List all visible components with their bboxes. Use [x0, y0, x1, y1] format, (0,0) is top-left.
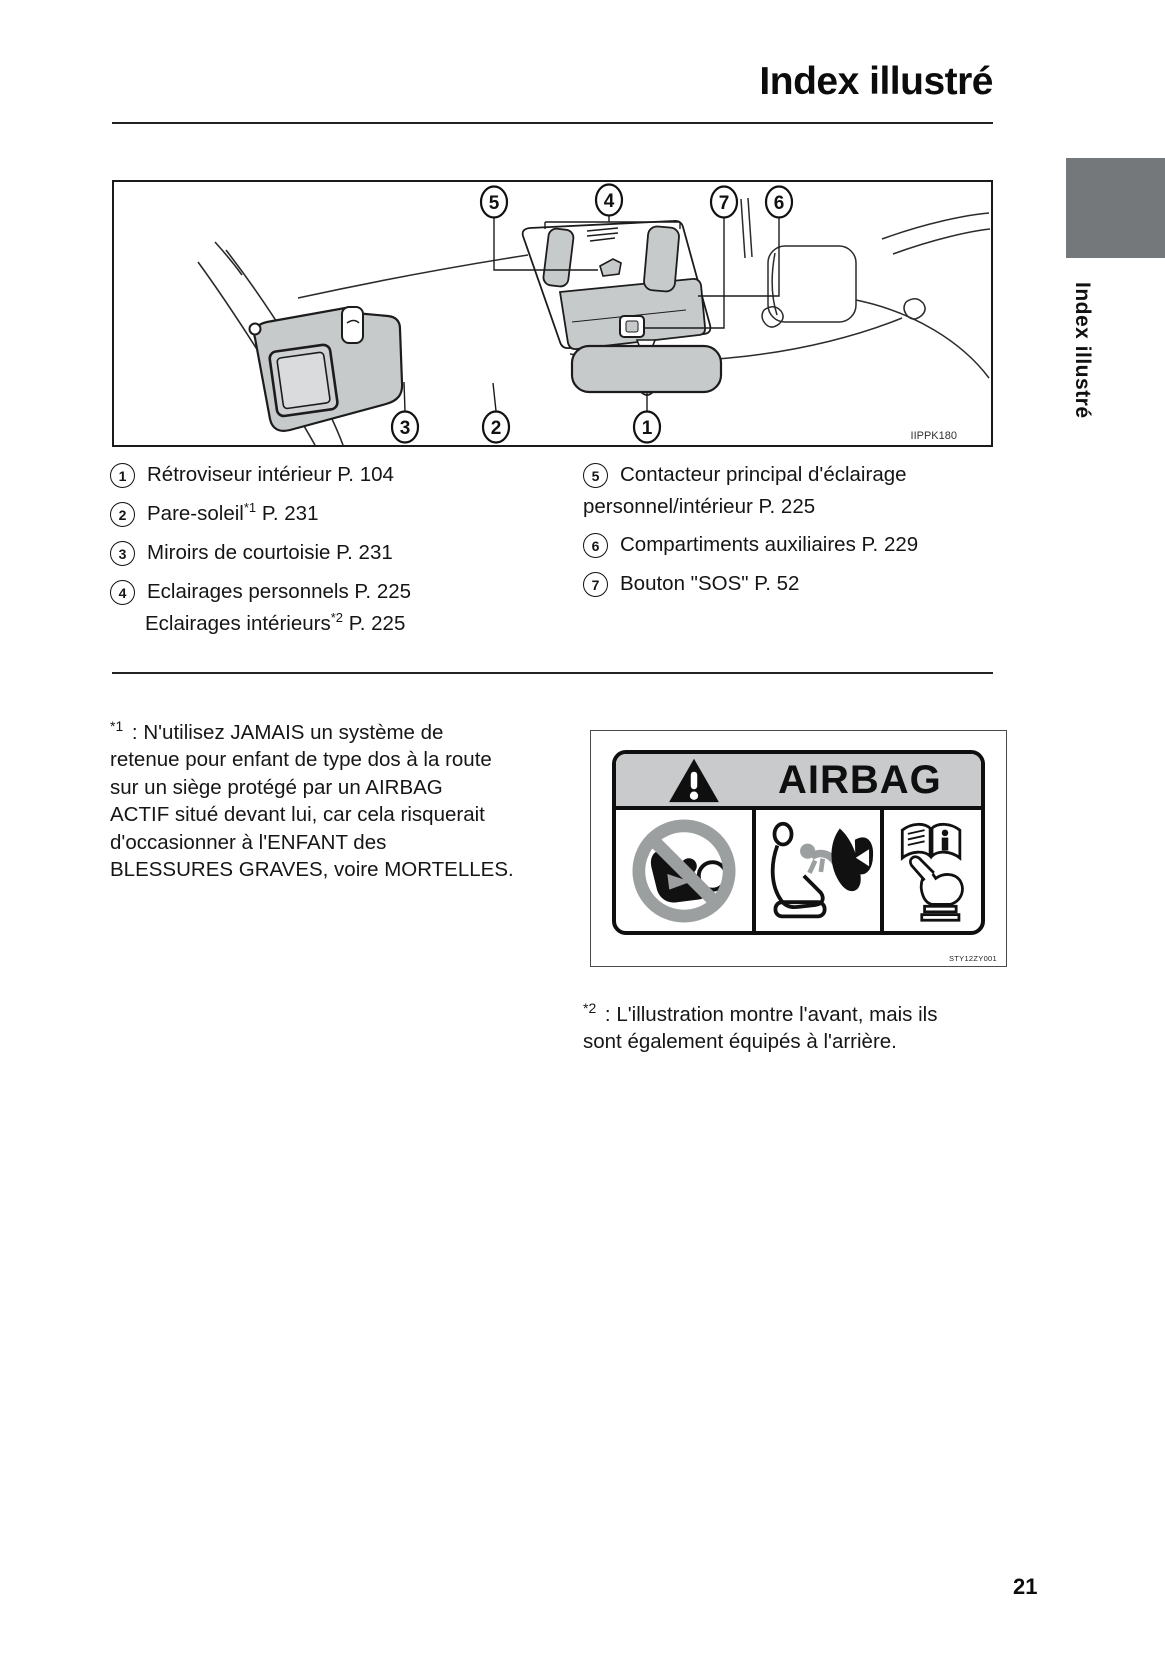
- legend-text-part: P. 225: [343, 612, 405, 635]
- legend-item-3: 3 Miroirs de courtoisie P. 231: [110, 540, 580, 566]
- personal-light-right: [643, 226, 679, 292]
- airbag-deployment-icon: [759, 819, 877, 923]
- warning-triangle-icon: [666, 756, 722, 804]
- footnote-1-marker: *1: [110, 718, 123, 734]
- legend-sup: *1: [244, 500, 256, 515]
- legend-text-part: Eclairages intérieurs: [145, 612, 331, 635]
- manual-page: Index illustré Index illustré: [0, 0, 1165, 1653]
- airbag-label-title: AIRBAG: [778, 758, 942, 803]
- visor-pivot: [250, 324, 261, 335]
- airbag-warning-label: AIRBAG: [590, 730, 1007, 967]
- airbag-cell-deployment: [756, 810, 884, 931]
- callout-5: 5: [489, 193, 500, 214]
- legend-item-2: 2 Pare-soleil*1 P. 231: [110, 501, 580, 527]
- legend-rule: [112, 672, 993, 674]
- legend-text-1: Rétroviseur intérieur P. 104: [147, 462, 394, 487]
- footnote-2-marker: *2: [583, 1000, 596, 1016]
- legend-item-5-line2: personnel/intérieur P. 225: [583, 494, 998, 519]
- callout-6: 6: [774, 193, 785, 214]
- legend-text-part: Miroirs de courtoisie P. 231: [147, 541, 393, 564]
- airbag-label-body: [616, 810, 981, 931]
- airbag-label-frame: AIRBAG: [612, 750, 985, 935]
- callout-7: 7: [719, 193, 730, 214]
- visor-hook: [342, 307, 363, 343]
- callout-2: 2: [491, 418, 502, 439]
- footnote-2: *2 : L'illustration montre l'avant, mais…: [583, 1001, 1013, 1056]
- chapter-tab-label: Index illustré: [1070, 282, 1094, 442]
- auxiliary-compartment: [560, 279, 705, 349]
- page-number: 21: [1013, 1574, 1037, 1600]
- legend-text-4: Eclairages personnels P. 225: [147, 579, 411, 604]
- footnote-2-text: : L'illustration montre l'avant, mais il…: [583, 1003, 937, 1054]
- legend-text-6: Compartiments auxiliaires P. 229: [620, 532, 918, 557]
- legend-text-5: Contacteur principal d'éclairage: [620, 462, 907, 487]
- callout-badge-1: 1: [110, 463, 135, 488]
- legend-item-5: 5 Contacteur principal d'éclairage: [583, 462, 998, 488]
- callout-badge-6: 6: [583, 533, 608, 558]
- figure-code: IIPPK180: [911, 430, 957, 442]
- sos-button: [620, 316, 644, 337]
- title-rule: [112, 122, 993, 124]
- legend-item-4: 4 Eclairages personnels P. 225: [110, 579, 580, 605]
- airbag-label-header: AIRBAG: [616, 754, 981, 810]
- callout-badge-4: 4: [110, 580, 135, 605]
- chapter-tab: [1066, 158, 1165, 258]
- airbag-cell-prohibition: [616, 810, 756, 931]
- legend-text-part: Eclairages personnels P. 225: [147, 580, 411, 603]
- legend-item-4-line2: Eclairages intérieurs*2 P. 225: [145, 611, 580, 636]
- vanity-mirror: [269, 344, 338, 417]
- callout-1: 1: [642, 418, 653, 439]
- page-title: Index illustré: [759, 60, 993, 104]
- legend-sup: *2: [331, 610, 343, 625]
- callout-4: 4: [604, 191, 615, 212]
- airbag-label-code: STY12ZY001: [949, 954, 997, 963]
- callout-badge-7: 7: [583, 572, 608, 597]
- footnote-1-text: : N'utilisez JAMAIS un système de retenu…: [110, 721, 514, 882]
- interior-illustration: 5 4 7 6 3 2 1 IIPPK180: [112, 180, 993, 447]
- callout-3: 3: [400, 418, 411, 439]
- callout-badge-5: 5: [583, 463, 608, 488]
- legend-text-part: Pare-soleil: [147, 502, 244, 525]
- legend-text-2: Pare-soleil*1 P. 231: [147, 501, 318, 526]
- legend-text-part: P. 231: [256, 502, 318, 525]
- legend-text-3: Miroirs de courtoisie P. 231: [147, 540, 393, 565]
- no-rear-facing-child-seat-icon: [630, 817, 738, 925]
- read-owners-manual-icon: [894, 819, 970, 923]
- legend-text-part: Rétroviseur intérieur P. 104: [147, 463, 394, 486]
- airbag-cell-manual: [884, 810, 981, 931]
- legend-item-6: 6 Compartiments auxiliaires P. 229: [583, 532, 998, 558]
- callout-badge-2: 2: [110, 502, 135, 527]
- legend-text-7: Bouton "SOS" P. 52: [620, 571, 799, 596]
- footnote-1: *1 : N'utilisez JAMAIS un système de ret…: [110, 719, 600, 884]
- legend-item-1: 1 Rétroviseur intérieur P. 104: [110, 462, 580, 488]
- callout-badge-3: 3: [110, 541, 135, 566]
- rearview-mirror: [572, 340, 721, 395]
- sun-visor: [250, 307, 403, 431]
- legend-right-column: 5 Contacteur principal d'éclairage perso…: [583, 462, 998, 610]
- legend-item-7: 7 Bouton "SOS" P. 52: [583, 571, 998, 597]
- interior-illustration-svg: 5 4 7 6 3 2 1 IIPPK180: [114, 182, 991, 445]
- legend-left-column: 1 Rétroviseur intérieur P. 104 2 Pare-so…: [110, 462, 580, 649]
